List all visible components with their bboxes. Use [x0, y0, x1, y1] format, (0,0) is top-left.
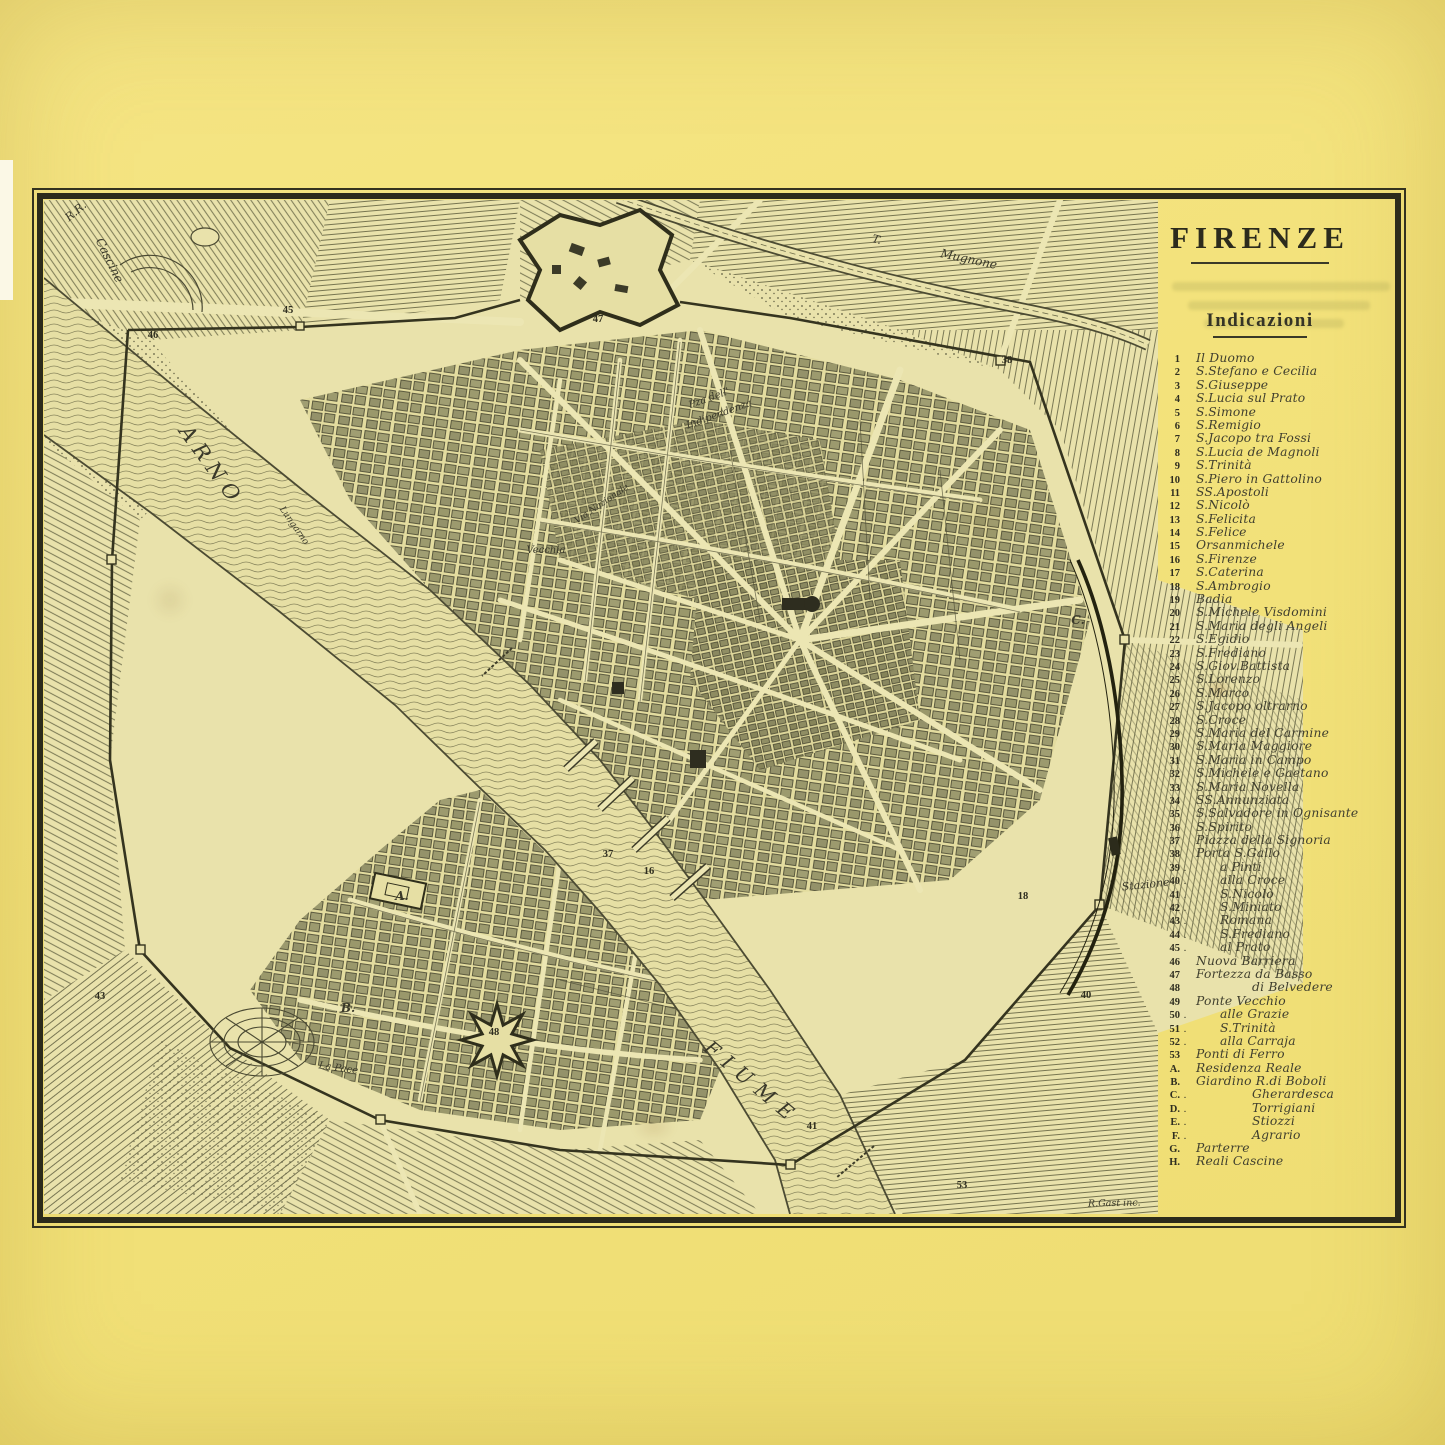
- legend-item: 1 Il Duomo: [1158, 352, 1408, 365]
- legend-item-label: S.Stefano e Cecilia: [1196, 365, 1317, 378]
- legend-item-label: S.Trinità: [1196, 459, 1252, 472]
- legend-item-label: alla Carraja: [1220, 1035, 1296, 1048]
- legend-item-label: S.Egidio: [1196, 633, 1249, 646]
- legend-item-label: S.Felice: [1196, 526, 1247, 539]
- legend-item: 51 . S.Trinità: [1158, 1022, 1408, 1035]
- legend-item-label: S.Marco: [1196, 687, 1249, 700]
- legend-item-label: Nuova Barriera: [1196, 955, 1296, 968]
- legend-item: 12 S.Nicolò: [1158, 499, 1408, 512]
- legend-item-number: 23: [1158, 648, 1180, 661]
- map-ref-number: 46: [148, 330, 159, 341]
- legend-item-number: 3: [1158, 380, 1180, 393]
- legend-item-number: 11: [1158, 487, 1180, 500]
- legend-item: 16 S.Firenze: [1158, 553, 1408, 566]
- legend-item: A. Residenza Reale: [1158, 1062, 1408, 1075]
- legend-item-label: Giardino R.di Boboli: [1196, 1075, 1326, 1088]
- legend-item-label: S.Jacopo oltrarno: [1196, 700, 1308, 713]
- legend-item: 25 S.Lorenzo: [1158, 673, 1408, 686]
- legend-item: 5 S.Simone: [1158, 406, 1408, 419]
- legend-item-label: a Pinti: [1220, 861, 1262, 874]
- legend-item: 45 . al Prato: [1158, 941, 1408, 954]
- legend-item-number: 44: [1158, 929, 1180, 942]
- legend-item-label: Romana: [1220, 914, 1272, 927]
- legend-item-number: B.: [1158, 1076, 1180, 1089]
- legend-item-label: Torrigiani: [1252, 1102, 1315, 1115]
- legend-item-label: Orsanmichele: [1196, 539, 1285, 552]
- legend-item: 30 S.Maria Maggiore: [1158, 740, 1408, 753]
- legend-item: 23 S.Frediano: [1158, 647, 1408, 660]
- legend-item-number: 9: [1158, 460, 1180, 473]
- legend-item-number: 13: [1158, 514, 1180, 527]
- legend-item-number: 20: [1158, 607, 1180, 620]
- legend-item: 21 S.Maria degli Angeli: [1158, 620, 1408, 633]
- map-sheet: R.R.CascineARNOFIUMET.MugnonePza dell'In…: [0, 0, 1445, 1445]
- legend-item-number: 49: [1158, 996, 1180, 1009]
- legend-item-label: Residenza Reale: [1196, 1062, 1302, 1075]
- legend-item-number: 36: [1158, 822, 1180, 835]
- legend-item: 26 S.Marco: [1158, 687, 1408, 700]
- legend-item-number: 19: [1158, 594, 1180, 607]
- legend-item-ditto-dot: .: [1180, 875, 1190, 888]
- legend-item-number: 7: [1158, 433, 1180, 446]
- legend-item: 10 S.Piero in Gattolino: [1158, 473, 1408, 486]
- legend-item-number: 12: [1158, 500, 1180, 513]
- legend-item-number: 51: [1158, 1023, 1180, 1036]
- legend-item-number: 25: [1158, 674, 1180, 687]
- legend-item-number: 48: [1158, 982, 1180, 995]
- legend-item-number: 52: [1158, 1036, 1180, 1049]
- legend-item: 17 S.Caterina: [1158, 566, 1408, 579]
- legend-item-number: 30: [1158, 741, 1180, 754]
- legend-item-label: Parterre: [1196, 1142, 1250, 1155]
- legend-item-number: 10: [1158, 474, 1180, 487]
- legend-item-ditto-dot: .: [1180, 1103, 1190, 1116]
- legend-item-label: S.Frediano: [1196, 647, 1266, 660]
- legend-item: 2 S.Stefano e Cecilia: [1158, 365, 1408, 378]
- legend-item-number: 27: [1158, 701, 1180, 714]
- legend-item-label: Ponte Vecchio: [1196, 995, 1286, 1008]
- legend-item-ditto-dot: .: [1180, 1089, 1190, 1102]
- legend-item-label: S.Michele e Gaetano: [1196, 767, 1329, 780]
- map-label: C.: [1071, 613, 1085, 627]
- legend-item-label: Gherardesca: [1252, 1088, 1334, 1101]
- legend-item-label: S.Nicolò: [1220, 888, 1274, 901]
- legend-item-label: S.Miniato: [1220, 901, 1282, 914]
- legend-item-number: A.: [1158, 1063, 1180, 1076]
- legend-item-number: 31: [1158, 755, 1180, 768]
- legend-item-label: SS.Annunziata: [1196, 794, 1289, 807]
- map-title: FIRENZE: [1120, 220, 1400, 256]
- legend-item-number: 37: [1158, 835, 1180, 848]
- legend-item-number: 5: [1158, 407, 1180, 420]
- legend-item-label: Ponti di Ferro: [1196, 1048, 1285, 1061]
- legend-item-label: S.Michele Visdomini: [1196, 606, 1327, 619]
- legend-item-label: S.Maria degli Angeli: [1196, 620, 1327, 633]
- legend-item-number: D.: [1158, 1103, 1180, 1116]
- legend-item-label: S.Spirito: [1196, 821, 1252, 834]
- map-ref-number: 43: [95, 991, 106, 1002]
- legend-item-number: 53: [1158, 1049, 1180, 1062]
- legend-list: 1 Il Duomo 2 S.Stefano e Cecilia 3 S.Giu…: [1158, 352, 1408, 1169]
- legend-item: 29 S.Maria del Carmine: [1158, 727, 1408, 740]
- legend-item-label: S.Ambrogio: [1196, 580, 1271, 593]
- legend-item: 33 S.Maria Novella: [1158, 781, 1408, 794]
- belvedere-fort: [461, 1004, 533, 1076]
- legend-item: 15 Orsanmichele: [1158, 539, 1408, 552]
- legend-item-number: 15: [1158, 540, 1180, 553]
- legend-item-label: Fortezza da Basso: [1196, 968, 1312, 981]
- boboli-gardens: [210, 1008, 314, 1076]
- scan-edge-artifact: [0, 160, 13, 300]
- legend-item-number: 34: [1158, 795, 1180, 808]
- legend-item: 53 Ponti di Ferro: [1158, 1048, 1408, 1061]
- legend-item-number: C.: [1158, 1089, 1180, 1102]
- legend-item-label: S.Giov.Battista: [1196, 660, 1290, 673]
- legend-item-ditto-dot: .: [1180, 902, 1190, 915]
- legend-item: 19 Badia: [1158, 593, 1408, 606]
- map-ref-number: 53: [957, 1180, 968, 1191]
- legend-item-label: S.Felicita: [1196, 513, 1256, 526]
- map-ref-number: 48: [489, 1027, 500, 1038]
- legend-item: 28 S.Croce: [1158, 714, 1408, 727]
- legend-item: 7 S.Jacopo tra Fossi: [1158, 432, 1408, 445]
- legend-item: 24 S.Giov.Battista: [1158, 660, 1408, 673]
- legend-item-label: S.Frediano: [1220, 928, 1290, 941]
- legend-item-label: S.Remigio: [1196, 419, 1261, 432]
- legend-item-ditto-dot: .: [1180, 1116, 1190, 1129]
- legend-item-label: S.Piero in Gattolino: [1196, 473, 1322, 486]
- legend-item-number: 14: [1158, 527, 1180, 540]
- legend-item: 36 S.Spirito: [1158, 821, 1408, 834]
- legend-item-number: 45: [1158, 942, 1180, 955]
- legend-item-label: S.Lucia sul Prato: [1196, 392, 1305, 405]
- legend-item-number: 18: [1158, 581, 1180, 594]
- legend-item-ditto-dot: .: [1180, 1130, 1190, 1143]
- legend-item-label: S.Giuseppe: [1196, 379, 1268, 392]
- legend-item: 42 . S.Miniato: [1158, 901, 1408, 914]
- legend-item-number: E.: [1158, 1116, 1180, 1129]
- legend-item-number: 2: [1158, 366, 1180, 379]
- legend-item: 47 Fortezza da Basso: [1158, 968, 1408, 981]
- legend-item: 35 S.Salvadore in Ognisante: [1158, 807, 1408, 820]
- legend-item: 38 Porta S.Gallo: [1158, 847, 1408, 860]
- legend-item-number: 46: [1158, 956, 1180, 969]
- legend-item-number: 16: [1158, 554, 1180, 567]
- legend-item-number: 29: [1158, 728, 1180, 741]
- legend-item-label: S.Lorenzo: [1196, 673, 1260, 686]
- legend-item-ditto-dot: .: [1180, 942, 1190, 955]
- legend-item: 27 S.Jacopo oltrarno: [1158, 700, 1408, 713]
- legend-item-label: Badia: [1196, 593, 1233, 606]
- legend-heading: Indicazioni: [1120, 310, 1400, 332]
- legend-item: 32 S.Michele e Gaetano: [1158, 767, 1408, 780]
- legend-item-ditto-dot: .: [1180, 915, 1190, 928]
- legend-item: 11 SS.Apostoli: [1158, 486, 1408, 499]
- legend-item-number: 40: [1158, 875, 1180, 888]
- map-ref-number: 41: [807, 1121, 818, 1132]
- legend-item-label: S.Maria Maggiore: [1196, 740, 1312, 753]
- legend-item: 20 S.Michele Visdomini: [1158, 606, 1408, 619]
- legend-item-number: 39: [1158, 862, 1180, 875]
- legend-item-ditto-dot: .: [1180, 889, 1190, 902]
- legend-item-label: S.Lucia de Magnoli: [1196, 446, 1320, 459]
- legend-item: 22 S.Egidio: [1158, 633, 1408, 646]
- legend-item: 39 . a Pinti: [1158, 861, 1408, 874]
- map-label: A.: [394, 889, 409, 903]
- legend-item-ditto-dot: .: [1180, 862, 1190, 875]
- legend-item-label: Reali Cascine: [1196, 1155, 1283, 1168]
- legend-item-label: S.Caterina: [1196, 566, 1264, 579]
- legend-item-number: G.: [1158, 1143, 1180, 1156]
- legend-item-number: 28: [1158, 715, 1180, 728]
- legend-item-label: alle Grazie: [1220, 1008, 1289, 1021]
- legend-item-number: 6: [1158, 420, 1180, 433]
- legend-item-number: 50: [1158, 1009, 1180, 1022]
- legend-item-label: Agrario: [1252, 1129, 1301, 1142]
- legend-item-number: 21: [1158, 621, 1180, 634]
- legend-item: 8 S.Lucia de Magnoli: [1158, 446, 1408, 459]
- legend-item-label: di Belvedere: [1252, 981, 1333, 994]
- legend-item-label: al Prato: [1220, 941, 1271, 954]
- legend-item: E. . Stiozzi: [1158, 1115, 1408, 1128]
- legend-item: 13 S.Felicita: [1158, 513, 1408, 526]
- legend-item-number: 43: [1158, 915, 1180, 928]
- legend-item: 41 . S.Nicolò: [1158, 888, 1408, 901]
- legend-item: 18 S.Ambrogio: [1158, 580, 1408, 593]
- legend-item: 44 . S.Frediano: [1158, 928, 1408, 941]
- title-block: FIRENZE Indicazioni: [1120, 220, 1400, 338]
- legend-item-label: S.Nicolò: [1196, 499, 1250, 512]
- legend-item: B. Giardino R.di Boboli: [1158, 1075, 1408, 1088]
- legend-item-number: 17: [1158, 567, 1180, 580]
- legend-item: 3 S.Giuseppe: [1158, 379, 1408, 392]
- legend-item: 40 . alla Croce: [1158, 874, 1408, 887]
- legend-item-label: alla Croce: [1220, 874, 1285, 887]
- map-ref-number: 38: [1002, 355, 1013, 366]
- legend-item-number: 42: [1158, 902, 1180, 915]
- legend-item-number: 8: [1158, 447, 1180, 460]
- legend-item-label: Porta S.Gallo: [1196, 847, 1280, 860]
- legend-item: 9 S.Trinità: [1158, 459, 1408, 472]
- map-label: B.: [340, 1001, 355, 1015]
- legend-item-label: Piazza della Signoria: [1196, 834, 1331, 847]
- legend-item: 31 S.Maria in Campo: [1158, 754, 1408, 767]
- legend-item-number: 33: [1158, 782, 1180, 795]
- legend-item: 48 di Belvedere: [1158, 981, 1408, 994]
- legend-item-label: S.Jacopo tra Fossi: [1196, 432, 1311, 445]
- legend-item-number: 26: [1158, 688, 1180, 701]
- legend-item: H. Reali Cascine: [1158, 1155, 1408, 1168]
- legend-item-label: S.Maria in Campo: [1196, 754, 1312, 767]
- legend-item: G. Parterre: [1158, 1142, 1408, 1155]
- engraver-signature: R.Gast inc.: [1088, 1198, 1141, 1210]
- title-underline: [1191, 262, 1329, 264]
- legend-item-number: 35: [1158, 808, 1180, 821]
- legend-item-ditto-dot: .: [1180, 1009, 1190, 1022]
- legend-item: 14 S.Felice: [1158, 526, 1408, 539]
- map-ref-number: 45: [283, 305, 294, 316]
- legend-item: 34 SS.Annunziata: [1158, 794, 1408, 807]
- legend-item-ditto-dot: .: [1180, 929, 1190, 942]
- map-label: Vecchia: [526, 545, 565, 556]
- legend-item-number: 22: [1158, 634, 1180, 647]
- legend-item-number: 41: [1158, 889, 1180, 902]
- legend-item: 6 S.Remigio: [1158, 419, 1408, 432]
- legend-item-number: 47: [1158, 969, 1180, 982]
- legend-item-number: 38: [1158, 848, 1180, 861]
- legend-heading-underline: [1213, 336, 1307, 338]
- legend-item-ditto-dot: .: [1180, 1036, 1190, 1049]
- legend-item-number: 1: [1158, 353, 1180, 366]
- legend-item-label: S.Maria Novella: [1196, 781, 1299, 794]
- legend-item-number: 24: [1158, 661, 1180, 674]
- legend-item-number: F.: [1158, 1130, 1180, 1143]
- legend-item-label: S.Salvadore in Ognisante: [1196, 807, 1358, 820]
- map-ref-number: 47: [593, 314, 604, 325]
- legend-item: 46 Nuova Barriera: [1158, 955, 1408, 968]
- fortezza-da-basso: [520, 210, 678, 330]
- legend-item: 50 . alle Grazie: [1158, 1008, 1408, 1021]
- legend-item-label: Il Duomo: [1196, 352, 1255, 365]
- legend-item: F. . Agrario: [1158, 1129, 1408, 1142]
- legend-item-number: 32: [1158, 768, 1180, 781]
- legend-item: 43 . Romana: [1158, 914, 1408, 927]
- legend-item: 52 . alla Carraja: [1158, 1035, 1408, 1048]
- legend-item: C. . Gherardesca: [1158, 1088, 1408, 1101]
- legend-item: 4 S.Lucia sul Prato: [1158, 392, 1408, 405]
- legend-item: D. . Torrigiani: [1158, 1102, 1408, 1115]
- legend-item: 37 Piazza della Signoria: [1158, 834, 1408, 847]
- map-ref-number: 37: [603, 849, 614, 860]
- legend-item-label: Stiozzi: [1252, 1115, 1295, 1128]
- legend-item-label: S.Maria del Carmine: [1196, 727, 1329, 740]
- map-ref-number: 18: [1018, 891, 1029, 902]
- legend-item-ditto-dot: .: [1180, 1023, 1190, 1036]
- map-ref-number: 16: [644, 866, 655, 877]
- map-ref-number: 40: [1081, 990, 1092, 1001]
- legend-item-number: 4: [1158, 393, 1180, 406]
- legend-item-number: H.: [1158, 1156, 1180, 1169]
- legend-item-label: S.Croce: [1196, 714, 1246, 727]
- legend-item-label: S.Simone: [1196, 406, 1256, 419]
- legend-item-label: S.Trinità: [1220, 1022, 1276, 1035]
- legend-item-label: SS.Apostoli: [1196, 486, 1269, 499]
- legend-item: 49 Ponte Vecchio: [1158, 995, 1408, 1008]
- legend-item-label: S.Firenze: [1196, 553, 1257, 566]
